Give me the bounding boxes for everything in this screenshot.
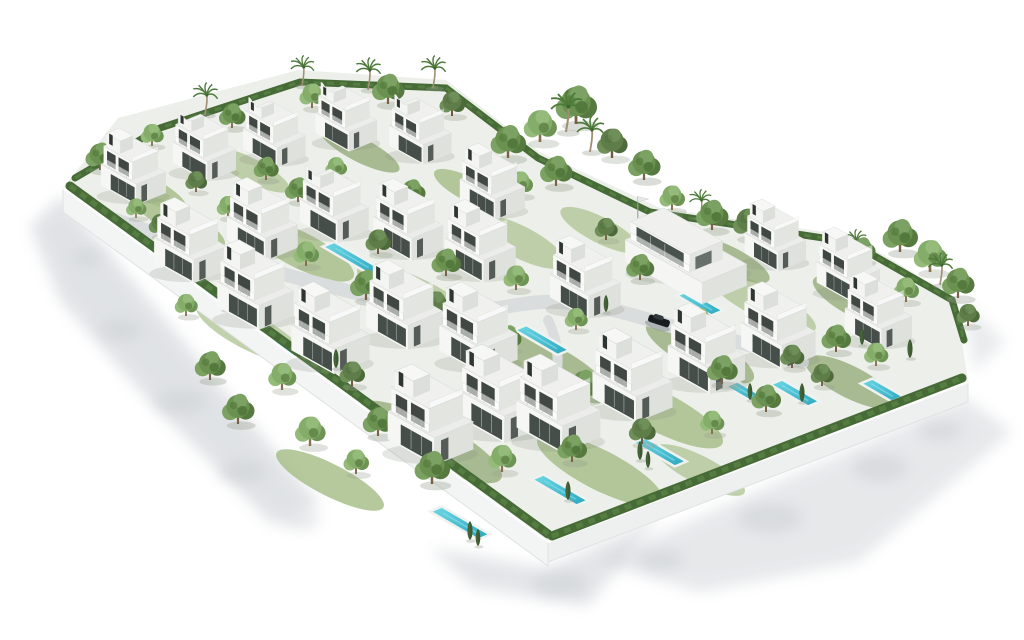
site-render [0,0,1024,640]
